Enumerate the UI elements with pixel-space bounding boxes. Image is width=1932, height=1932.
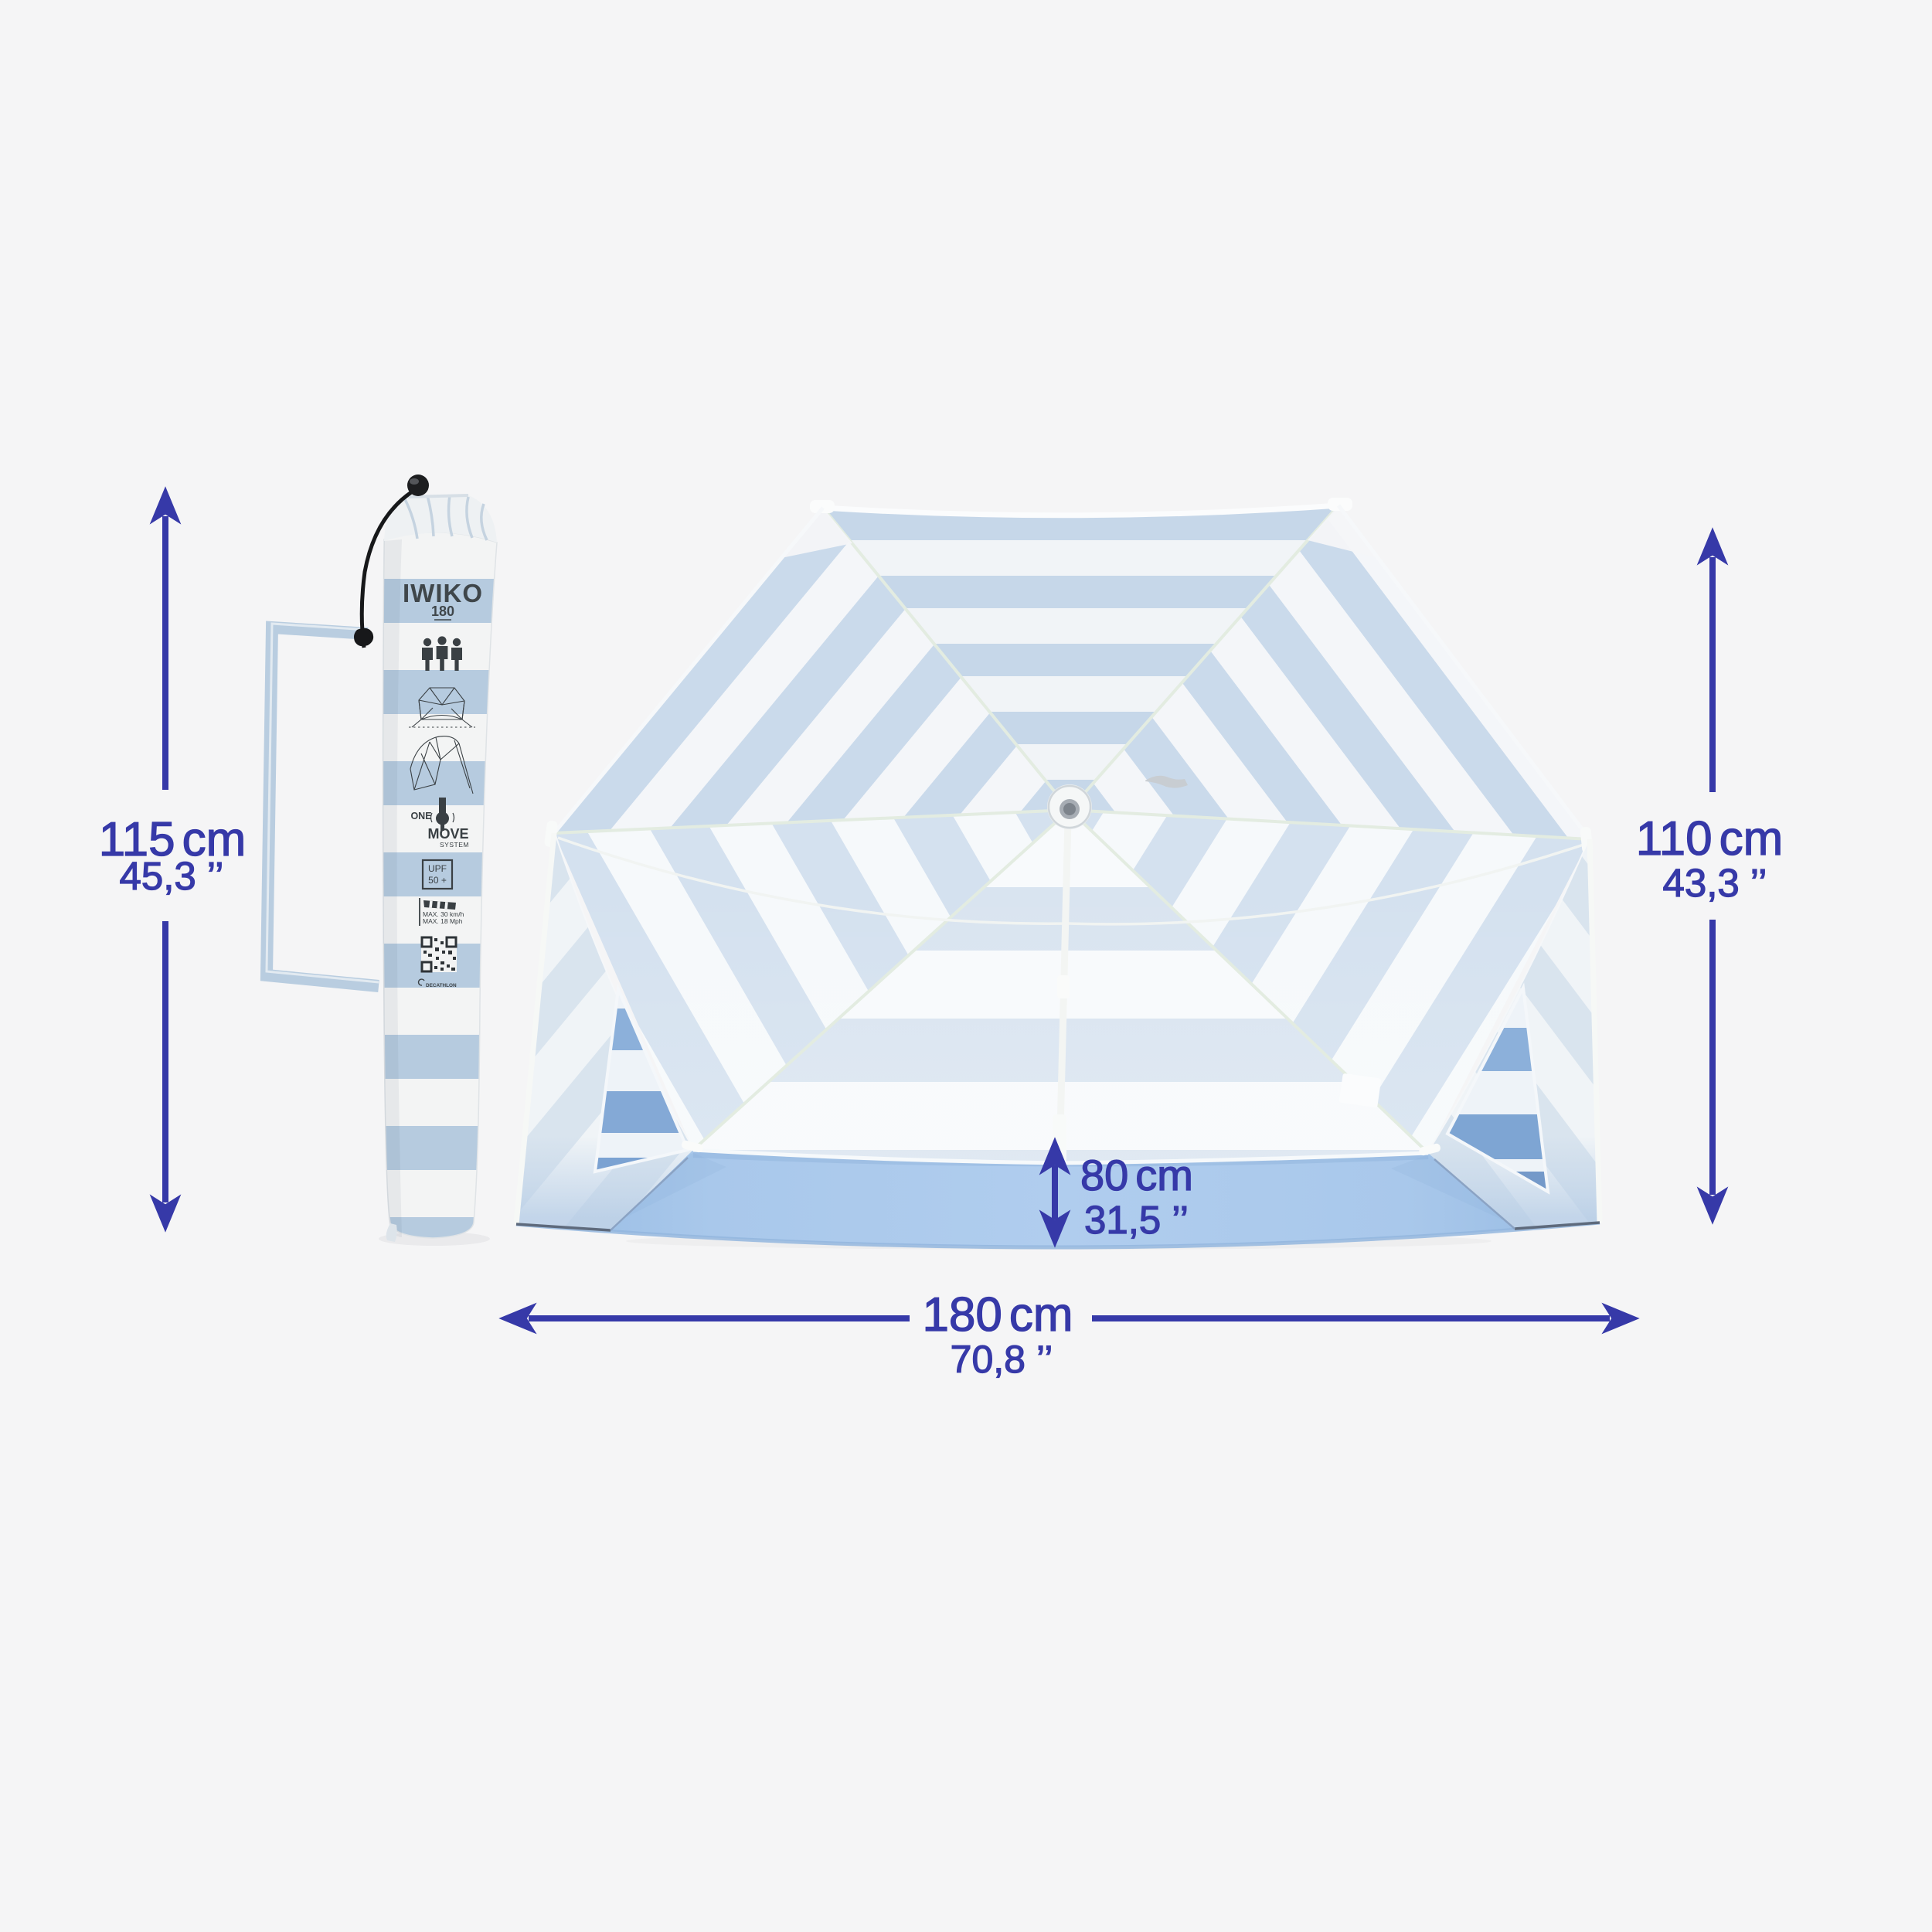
svg-text:180cm: 180cm bbox=[922, 1288, 1073, 1342]
svg-text:110cm: 110cm bbox=[1636, 812, 1784, 866]
svg-text:MAX. 18 Mph: MAX. 18 Mph bbox=[423, 917, 463, 925]
svg-text:UPF: UPF bbox=[428, 863, 447, 874]
svg-text:70,8’’: 70,8’’ bbox=[951, 1338, 1053, 1381]
svg-text:45,3’’: 45,3’’ bbox=[119, 854, 223, 898]
svg-text:43,3’’: 43,3’’ bbox=[1662, 861, 1767, 905]
svg-text:50 +: 50 + bbox=[428, 875, 447, 886]
svg-text:31,5’’: 31,5’’ bbox=[1084, 1198, 1189, 1242]
svg-text:SYSTEM: SYSTEM bbox=[440, 841, 469, 849]
svg-text:80cm: 80cm bbox=[1080, 1151, 1193, 1199]
svg-text:180: 180 bbox=[431, 604, 454, 619]
svg-text:ONE: ONE bbox=[410, 811, 431, 821]
svg-text:MOVE: MOVE bbox=[427, 826, 468, 842]
svg-text:DECATHLON: DECATHLON bbox=[426, 983, 457, 988]
